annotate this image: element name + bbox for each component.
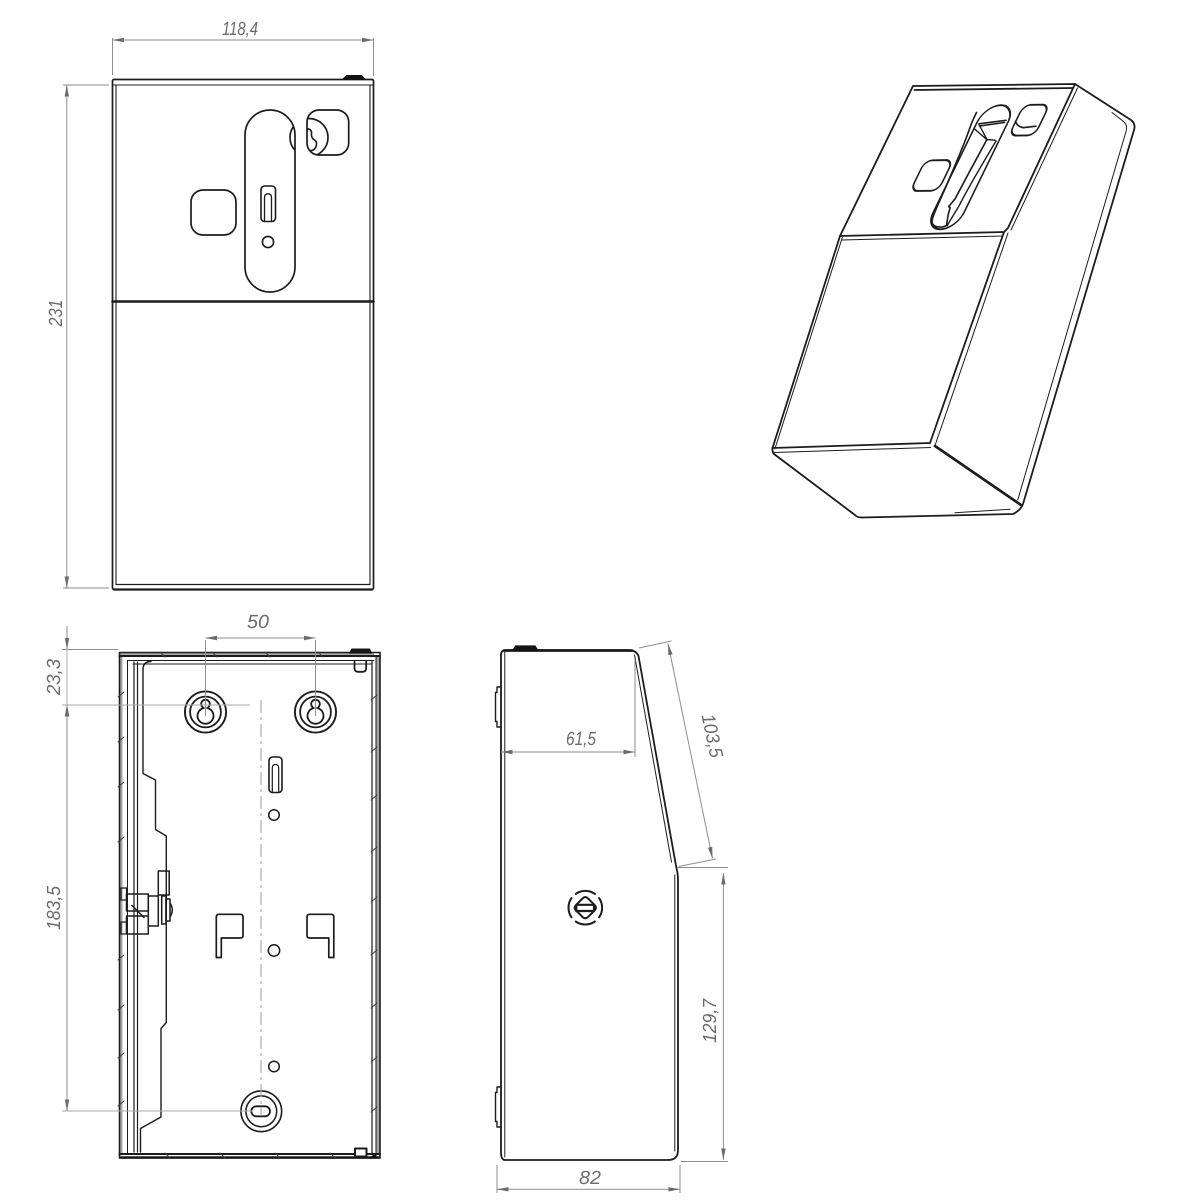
svg-text:129,7: 129,7 xyxy=(700,998,721,1043)
svg-text:50: 50 xyxy=(247,612,269,633)
svg-text:23,3: 23,3 xyxy=(44,659,65,696)
svg-text:231: 231 xyxy=(46,300,67,328)
svg-text:118,4: 118,4 xyxy=(222,19,258,40)
svg-text:61,5: 61,5 xyxy=(566,729,596,750)
svg-text:82: 82 xyxy=(579,1168,601,1189)
svg-text:183,5: 183,5 xyxy=(44,886,65,930)
